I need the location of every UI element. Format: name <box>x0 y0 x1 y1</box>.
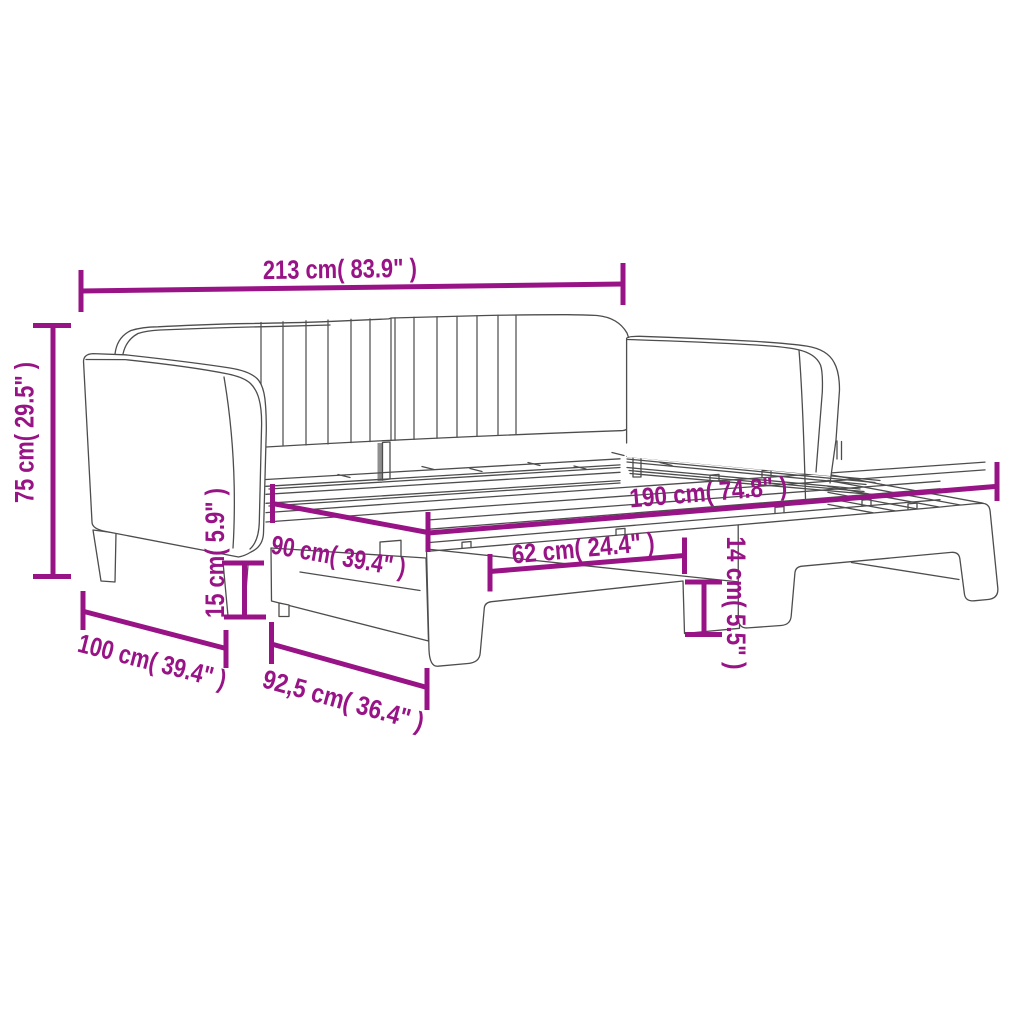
svg-text:92,5 cm( 36.4" ): 92,5 cm( 36.4" ) <box>259 664 427 737</box>
svg-text:213 cm( 83.9" ): 213 cm( 83.9" ) <box>263 253 417 285</box>
svg-text:14 cm( 5.5" ): 14 cm( 5.5" ) <box>721 537 751 670</box>
svg-text:75 cm( 29.5" ): 75 cm( 29.5" ) <box>10 362 40 503</box>
svg-text:100 cm( 39.4" ): 100 cm( 39.4" ) <box>75 628 230 695</box>
svg-text:15 cm( 5.9" ): 15 cm( 5.9" ) <box>200 488 230 618</box>
svg-text:62 cm( 24.4" ): 62 cm( 24.4" ) <box>511 527 656 570</box>
